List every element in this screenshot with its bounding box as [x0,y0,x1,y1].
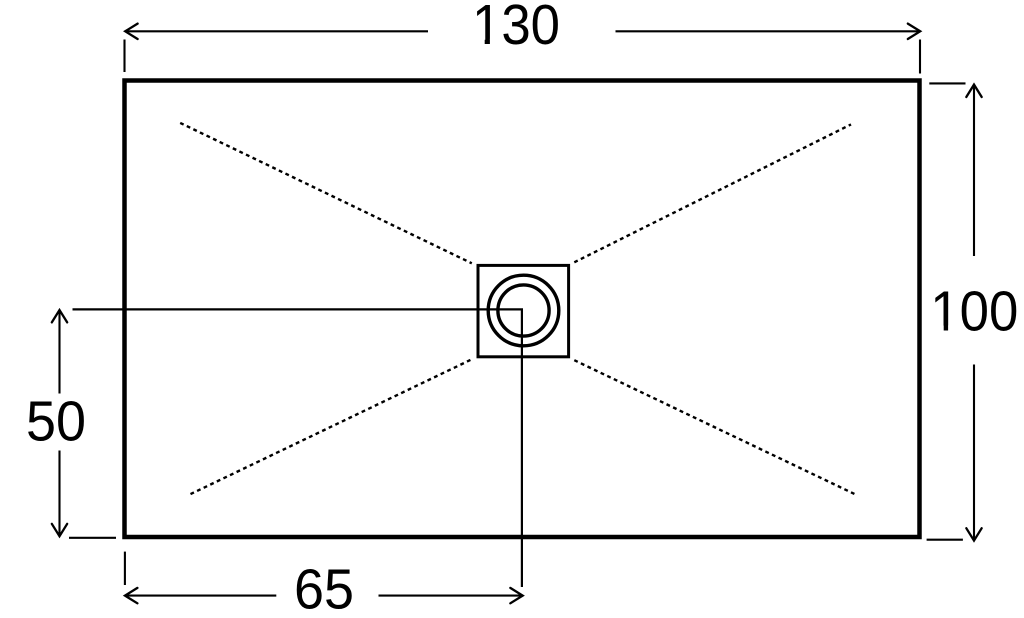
svg-text:130: 130 [472,0,560,57]
svg-text:100: 100 [930,280,1018,344]
svg-text:50: 50 [26,389,86,453]
svg-text:65: 65 [294,558,354,618]
